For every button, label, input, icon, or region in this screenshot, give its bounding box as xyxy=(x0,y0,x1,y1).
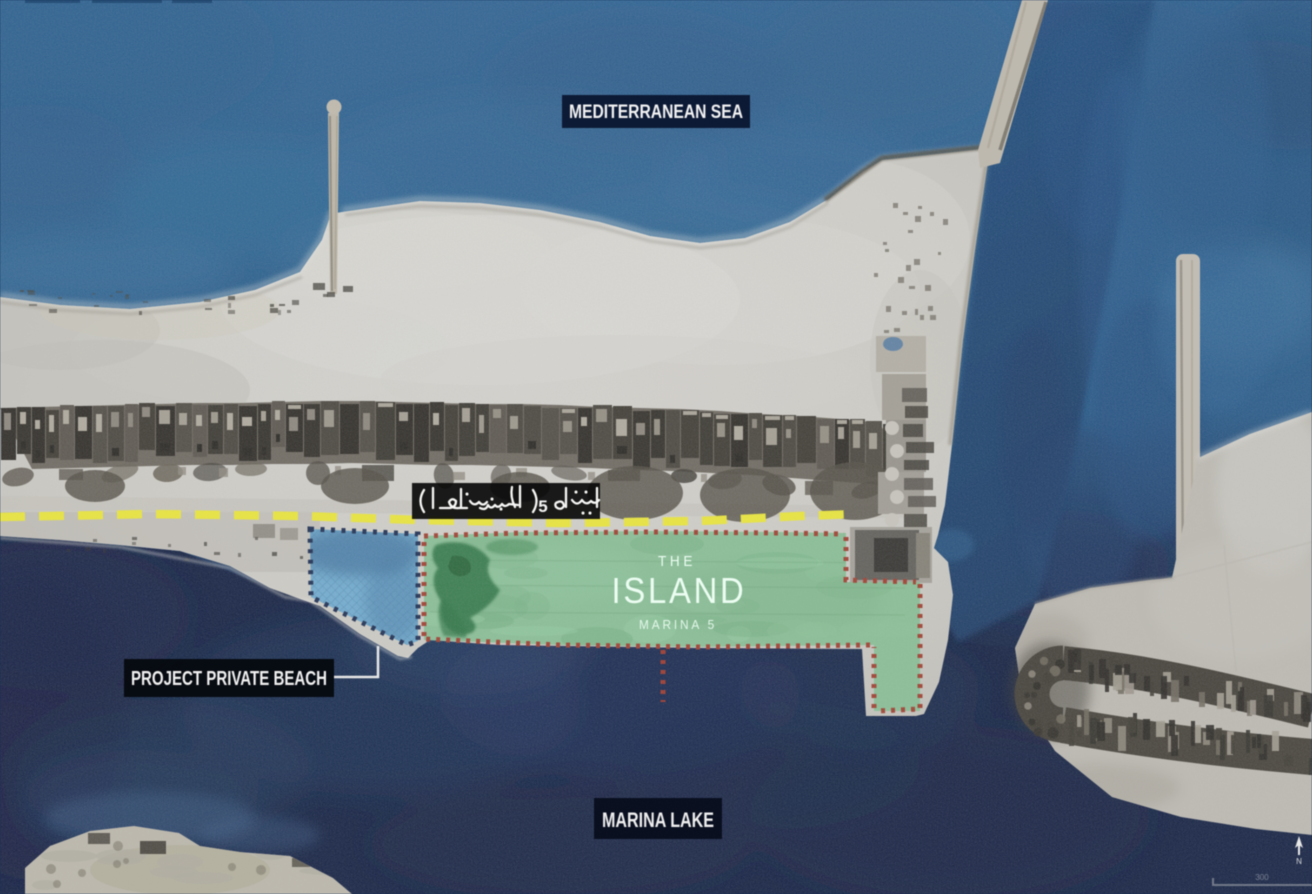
svg-text:MARINA 5: MARINA 5 xyxy=(639,618,717,632)
svg-text:5: 5 xyxy=(538,497,547,516)
svg-text:MARINA LAKE: MARINA LAKE xyxy=(602,809,714,832)
svg-text:300: 300 xyxy=(1255,873,1269,882)
svg-text:THE: THE xyxy=(658,553,696,570)
svg-text:MEDITERRANEAN SEA: MEDITERRANEAN SEA xyxy=(569,102,743,123)
svg-text:ISLAND: ISLAND xyxy=(612,570,747,611)
svg-text:N: N xyxy=(1296,857,1302,866)
svg-text:PROJECT PRIVATE BEACH: PROJECT PRIVATE BEACH xyxy=(131,668,327,690)
